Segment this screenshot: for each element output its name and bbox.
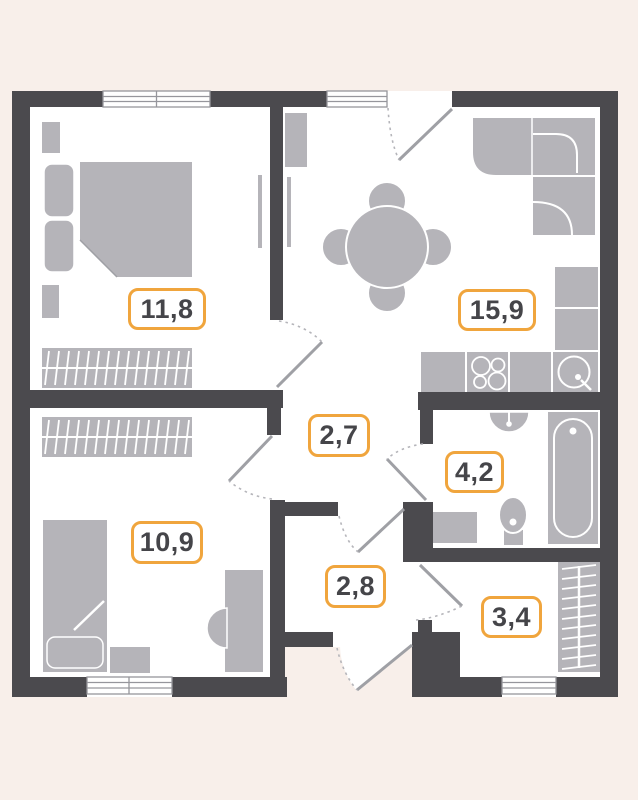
bedroom2-window bbox=[87, 677, 172, 694]
room-area-label-hall: 2,7 bbox=[308, 414, 370, 457]
wall bbox=[420, 548, 600, 562]
track-line bbox=[258, 175, 262, 248]
wall bbox=[452, 91, 618, 107]
desk-icon bbox=[225, 570, 263, 672]
wall bbox=[556, 677, 618, 697]
wall bbox=[30, 390, 283, 408]
storage-wardrobe-icon bbox=[558, 562, 600, 672]
room-area-label-storage: 3,4 bbox=[481, 596, 542, 638]
pillow-icon bbox=[44, 164, 74, 217]
wall bbox=[172, 677, 287, 697]
wall bbox=[600, 91, 618, 697]
kitchen-window bbox=[327, 91, 387, 107]
cabinet-icon bbox=[285, 113, 307, 167]
floor-plan: 11,8 15,9 2,7 4,2 10,9 2,8 3,4 bbox=[0, 0, 638, 800]
double-bed-icon bbox=[44, 162, 192, 277]
washing-machine-icon bbox=[433, 512, 477, 543]
wall bbox=[267, 408, 281, 435]
pillow-icon bbox=[44, 220, 74, 272]
room-area-label-kitchen-living: 15,9 bbox=[458, 289, 536, 331]
wall bbox=[412, 632, 460, 697]
wall bbox=[12, 677, 87, 697]
track-line bbox=[287, 177, 291, 247]
cabinet-icon bbox=[555, 267, 598, 307]
nightstand-icon bbox=[42, 122, 60, 153]
nightstand-icon bbox=[42, 285, 59, 318]
wall bbox=[460, 677, 502, 697]
room-area-label-bedroom: 11,8 bbox=[128, 288, 206, 330]
wall bbox=[420, 410, 433, 444]
single-bed-icon bbox=[43, 520, 107, 672]
wall bbox=[418, 392, 600, 410]
wall bbox=[12, 91, 30, 697]
wall bbox=[270, 632, 333, 647]
wall bbox=[270, 107, 283, 320]
wardrobe-rail-icon bbox=[42, 348, 192, 388]
wall bbox=[270, 500, 285, 697]
wardrobe-rail-icon bbox=[42, 417, 192, 457]
room-area-label-bathroom: 4,2 bbox=[445, 451, 504, 493]
pillow-icon bbox=[47, 637, 103, 668]
nightstand-icon bbox=[110, 647, 150, 673]
wall bbox=[270, 502, 338, 516]
cabinet-icon bbox=[555, 309, 598, 350]
storage-window bbox=[502, 677, 556, 694]
bedroom-window bbox=[103, 91, 210, 107]
floor-plan-drawing bbox=[0, 0, 638, 800]
wall bbox=[210, 91, 327, 107]
wall bbox=[418, 620, 432, 632]
bathtub-icon bbox=[548, 412, 598, 544]
room-area-label-entry-hall: 2,8 bbox=[325, 565, 386, 608]
room-area-label-bedroom-second: 10,9 bbox=[131, 521, 203, 564]
